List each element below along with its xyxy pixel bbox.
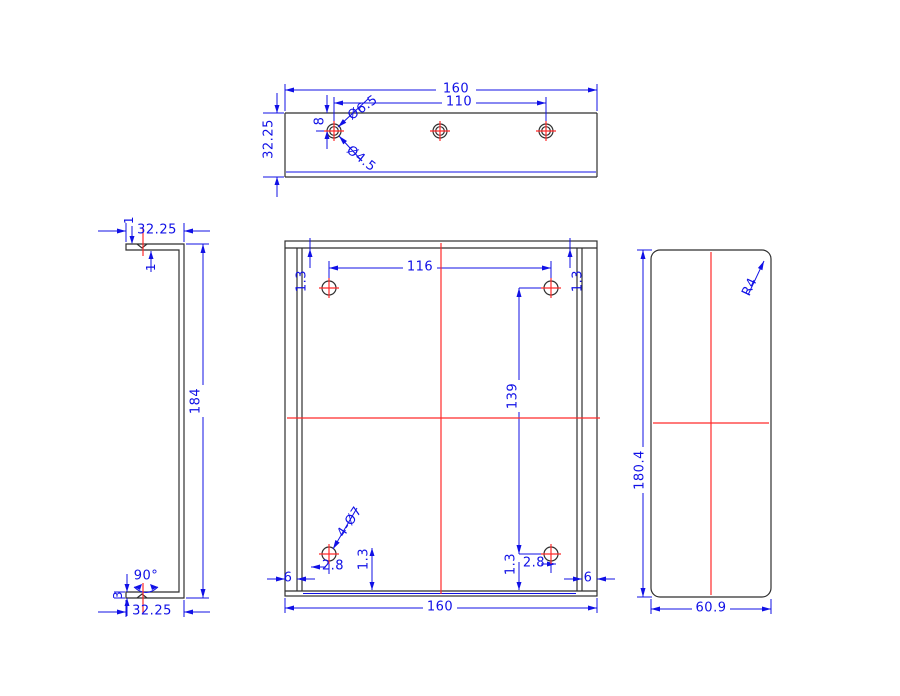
dim-mv-hole-span-y: 139 (507, 383, 520, 409)
dim-mv-hole-span-x: 116 (407, 261, 433, 274)
cad-drawing-canvas: 160 110 8 Ø6.5 Ø4.5 32.25 32.25 1 1 184 … (0, 0, 900, 696)
dim-mv-flange-right: 6 (584, 572, 593, 585)
dim-mv-width: 160 (427, 601, 453, 614)
label-bend-angle: 90° (134, 570, 159, 583)
top-view-outline (285, 113, 597, 177)
dimension-lines (98, 84, 771, 617)
dim-lv-thickness-inner: 1 (145, 263, 157, 271)
dim-lv-height: 184 (190, 388, 203, 414)
dim-tv-hole-spacing: 110 (446, 96, 472, 109)
dim-mv-edge-br: 1.3 (505, 553, 518, 575)
dim-lv-thickness-outer: 1 (123, 216, 135, 224)
dim-tv-hole-edge-offset: 8 (314, 117, 327, 126)
dimension-arrowheads (117, 88, 771, 615)
dim-mv-edge-tr: 1.3 (572, 270, 585, 292)
left-side-view-outline (126, 244, 184, 598)
dim-lv-thickness: 3 (112, 591, 124, 599)
dim-rv-depth: 60.9 (696, 602, 727, 615)
dim-lv-flange-width-top: 32.25 (137, 224, 177, 237)
dim-rv-height: 180.4 (634, 450, 647, 490)
dim-mv-offset-bl: 2.8 (322, 560, 344, 573)
dim-tv-height: 32.25 (263, 119, 276, 159)
centerlines (143, 121, 769, 614)
dim-mv-edge-bl: 1.3 (358, 548, 371, 570)
dim-mv-edge-tl: 1.3 (296, 270, 309, 292)
dim-lv-flange-width-bottom: 32.25 (132, 605, 172, 618)
dim-mv-offset-br: 2.8 (523, 557, 545, 570)
part-geometry (126, 113, 771, 598)
dim-mv-flange-left: 6 (284, 572, 293, 585)
